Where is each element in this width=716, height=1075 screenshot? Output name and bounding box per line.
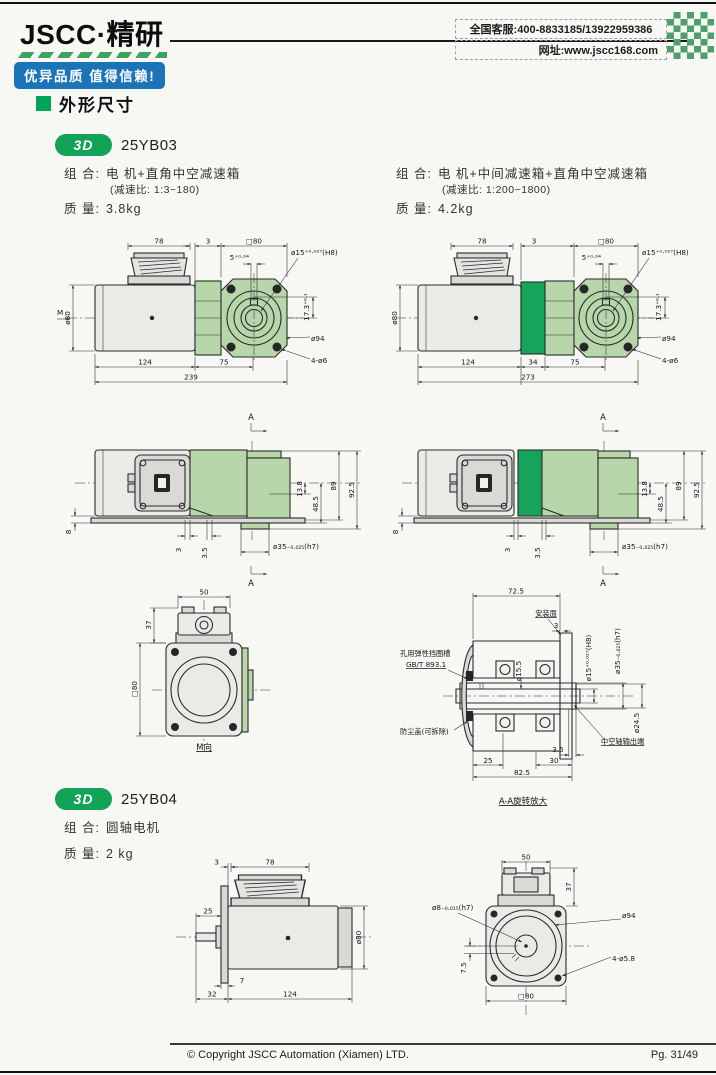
footer-page-number: Pg. 31/49 xyxy=(651,1049,698,1061)
gearbox-face xyxy=(221,273,287,363)
dim-holes: 4-ø5.8 xyxy=(612,954,635,963)
dim-8: 8 xyxy=(391,529,400,534)
dim-sq80: □80 xyxy=(246,237,262,246)
dim-shaft-d8: ø8₋₀.₀₁₅(h7) xyxy=(432,903,474,912)
gearbox-face xyxy=(574,273,638,363)
dim-3: 3 xyxy=(174,548,183,553)
dim-3-5: 3.5 xyxy=(552,745,563,754)
dim-sq80: □80 xyxy=(518,992,534,1001)
terminal-box xyxy=(231,875,309,906)
view-title-aa: A-A旋转放大 xyxy=(499,796,548,807)
badge-3d-25yb03: 3D xyxy=(55,134,112,156)
dim-30: 30 xyxy=(549,756,559,765)
combo-label: 组 合: xyxy=(64,821,100,835)
dim-bore-15-5: ø15.5 xyxy=(514,661,523,681)
dim-13-8: 13.8 xyxy=(295,481,304,497)
drawing-25yb03-combo1-side: 78 3 □80 5⁺⁰·⁰⁴ ø15⁺⁰·⁰²⁷(H8) 17.3⁺⁰·¹ ø… xyxy=(55,233,375,398)
dim-8: 8 xyxy=(64,529,73,534)
motor-face xyxy=(166,643,253,736)
section-bullet xyxy=(36,96,51,111)
dim-3: 3 xyxy=(554,621,559,630)
mass-value: 3.8kg xyxy=(106,202,142,216)
label-hollow-shaft-end: 中空轴输出端 xyxy=(601,737,644,746)
dim-239: 239 xyxy=(184,373,198,382)
dim-3-5: 3.5 xyxy=(533,547,542,558)
dim-hub-h7: ø35₋₀.₀₂₅(h7) xyxy=(613,628,622,674)
combo-value: 电 机+直角中空减速箱 xyxy=(106,167,240,181)
dim-78: 78 xyxy=(154,237,164,246)
checker-logo xyxy=(667,12,714,59)
combo-value: 电 机+中间减速箱+直角中空减速箱 xyxy=(438,167,648,181)
mounting-plate xyxy=(91,518,305,523)
view-title-m: M向 xyxy=(196,742,212,753)
dim-holes: 4-ø6 xyxy=(311,356,328,365)
dim-d80: ø80 xyxy=(63,311,72,325)
dim-7-5: 7.5 xyxy=(459,962,468,973)
service-hotline: 全国客服:400-8833185/13922959386 xyxy=(455,19,667,39)
drawing-25yb04-side: 3 78 25 7 32 124 ø80 xyxy=(168,853,383,1013)
dim-72-5: 72.5 xyxy=(508,587,524,596)
drawing-25yb03-combo1-top: A 8 xyxy=(55,408,375,593)
dim-7: 7 xyxy=(240,976,245,985)
logo-underline-dashes xyxy=(17,52,167,58)
dim-48-5: 48.5 xyxy=(311,496,320,512)
mass-label: 质 量: xyxy=(64,202,100,216)
top-border xyxy=(0,2,716,4)
combo-label: 组 合: xyxy=(64,167,100,181)
website: 网址:www.jscc168.com xyxy=(455,40,667,60)
bottom-border xyxy=(0,1071,716,1073)
section-mark-a-bottom: A xyxy=(248,566,267,589)
model-name-25yb03: 25YB03 xyxy=(121,137,177,154)
catalog-page: JSCC·精研 优异品质 值得信赖! 全国客服:400-8833185/1392… xyxy=(0,0,716,1075)
dim-17-3: 17.3⁺⁰·¹ xyxy=(654,293,663,321)
dim-shaft-d35: ø35₋₀.₀₂₅(h7) xyxy=(273,542,319,551)
dim-89: 89 xyxy=(674,481,683,491)
dim-50: 50 xyxy=(199,588,209,597)
dim-75: 75 xyxy=(219,358,228,367)
intermediate-gearbox xyxy=(521,282,545,354)
gearbox-edge xyxy=(242,648,248,732)
motor-body xyxy=(418,450,514,516)
drawing-25yb04-front: 50 37 ø8₋₀.₀₁₅(h7) ø94 4-ø5.8 7.5 □80 xyxy=(428,853,663,1023)
intermediate-gearbox xyxy=(518,450,542,516)
ratio-value: (减速比: 1:3~180) xyxy=(110,182,240,198)
terminal-box xyxy=(128,253,190,284)
dim-13-8: 13.8 xyxy=(640,481,649,497)
dim-sq80: □80 xyxy=(598,237,614,246)
label-dust-cap: 防尘盖(可拆除) xyxy=(400,727,449,736)
dim-holes: 4-ø6 xyxy=(662,356,679,365)
output-shaft xyxy=(196,933,216,941)
dim-3: 3 xyxy=(214,858,219,867)
combo-label: 组 合: xyxy=(396,167,432,181)
section-mark-a-top: A xyxy=(248,413,267,431)
dims: 72.5 安装面 3 ø15.5 ø15⁺⁰·⁰²⁷(H8) ø35₋₀.₀₂₅… xyxy=(400,587,646,782)
dim-3: 3 xyxy=(206,237,211,246)
section-label-a: A xyxy=(248,413,254,423)
terminal-box-front xyxy=(176,607,232,644)
gearbox-housing xyxy=(545,281,574,355)
dim-keyway: 5⁺⁰·⁰⁴ xyxy=(230,253,249,262)
dim-sq80: □80 xyxy=(130,681,139,697)
dim-25: 25 xyxy=(483,756,492,765)
dim-48-5: 48.5 xyxy=(656,496,665,512)
contact-box: 全国客服:400-8833185/13922959386 网址:www.jscc… xyxy=(455,19,667,60)
dim-3: 3 xyxy=(532,237,537,246)
slogan-badge: 优异品质 值得信赖! xyxy=(14,62,165,89)
dim-37: 37 xyxy=(144,620,153,629)
brand-logo: JSCC·精研 xyxy=(20,13,164,53)
mass-label: 质 量: xyxy=(396,202,432,216)
spec-25yb04: 组 合:圆轴电机 质 量:2 kg xyxy=(64,820,160,862)
dim-32: 32 xyxy=(207,990,216,999)
motor-body xyxy=(95,450,190,516)
dim-34: 34 xyxy=(528,358,538,367)
dim-3-5: 3.5 xyxy=(200,547,209,558)
dim-124: 124 xyxy=(138,358,152,367)
terminal-box-front xyxy=(498,868,554,906)
output-hub xyxy=(590,523,618,529)
dim-78: 78 xyxy=(265,858,275,867)
dim-bore: ø15⁺⁰·⁰²⁷(H8) xyxy=(642,248,689,257)
dim-92-5: 92.5 xyxy=(692,482,701,498)
dim-17-3: 17.3⁺⁰·¹ xyxy=(302,293,311,321)
front-flange xyxy=(221,886,228,983)
label-mount-face: 安装面 xyxy=(535,609,557,618)
dim-124: 124 xyxy=(461,358,475,367)
drawing-m-view: 50 37 □80 M向 xyxy=(128,588,313,753)
mass-value: 4.2kg xyxy=(438,202,474,216)
motor-body xyxy=(95,285,195,351)
dim-d80: ø80 xyxy=(390,311,399,325)
dim-3: 3 xyxy=(503,548,512,553)
dim-bore-h8: ø15⁺⁰·⁰²⁷(H8) xyxy=(584,634,593,681)
output-hub xyxy=(241,523,269,529)
dim-d94: ø94 xyxy=(622,911,636,920)
drawing-aa-section: 72.5 安装面 3 ø15.5 ø15⁺⁰·⁰²⁷(H8) ø35₋₀.₀₂₅… xyxy=(398,583,693,808)
dim-89: 89 xyxy=(329,481,338,491)
motor-body xyxy=(418,285,521,351)
dim-78: 78 xyxy=(477,237,487,246)
badge-3d-25yb04: 3D xyxy=(55,788,112,810)
dim-d94: ø94 xyxy=(662,334,676,343)
mass-label: 质 量: xyxy=(64,847,100,861)
dim-d80: ø80 xyxy=(354,930,363,944)
label-gbt-8931: GB/T 893.1 xyxy=(406,660,446,669)
dim-273: 273 xyxy=(521,373,535,382)
dim-75: 75 xyxy=(570,358,579,367)
section-label-a: A xyxy=(600,413,606,423)
combo-value: 圆轴电机 xyxy=(106,821,160,835)
footer-divider xyxy=(170,1043,716,1045)
dim-keyway: 5⁺⁰·⁰⁴ xyxy=(582,253,601,262)
mounting-plate xyxy=(414,518,650,523)
section-title: 外形尺寸 xyxy=(59,91,135,116)
spec-25yb03-right: 组 合:电 机+中间减速箱+直角中空减速箱 (减速比: 1:200~1800) … xyxy=(396,166,648,217)
label-circlip-groove: 孔用弹性挡圈槽 xyxy=(400,649,450,658)
drawing-25yb03-combo2-side: 78 3 □80 5⁺⁰·⁰⁴ ø15⁺⁰·⁰²⁷(H8) 17.3⁺⁰·¹ ø… xyxy=(388,233,716,398)
dim-shaft-d35: ø35₋₀.₀₂₅(h7) xyxy=(622,542,668,551)
dim-24-5: ø24.5 xyxy=(632,713,641,733)
dim-92-5: 92.5 xyxy=(347,482,356,498)
view-mark-m: M xyxy=(57,308,63,317)
drawing-25yb03-combo2-top: A 8 xyxy=(388,408,716,593)
dim-124: 124 xyxy=(283,990,297,999)
dim-bore: ø15⁺⁰·⁰²⁷(H8) xyxy=(291,248,338,257)
section-mark-a-top: A xyxy=(600,413,619,431)
dim-82-5: 82.5 xyxy=(514,768,530,777)
dim-37: 37 xyxy=(564,882,573,891)
mass-value: 2 kg xyxy=(106,847,134,861)
spec-25yb03-left: 组 合:电 机+直角中空减速箱 (减速比: 1:3~180) 质 量:3.8kg xyxy=(64,166,240,217)
footer-copyright: © Copyright JSCC Automation (Xiamen) LTD… xyxy=(187,1049,409,1061)
dim-d94: ø94 xyxy=(311,334,325,343)
ratio-value: (减速比: 1:200~1800) xyxy=(442,182,648,198)
dim-25: 25 xyxy=(203,907,212,916)
terminal-box xyxy=(451,253,513,284)
gearbox-housing xyxy=(195,281,221,355)
dim-50: 50 xyxy=(521,853,531,862)
model-name-25yb04: 25YB04 xyxy=(121,791,177,808)
